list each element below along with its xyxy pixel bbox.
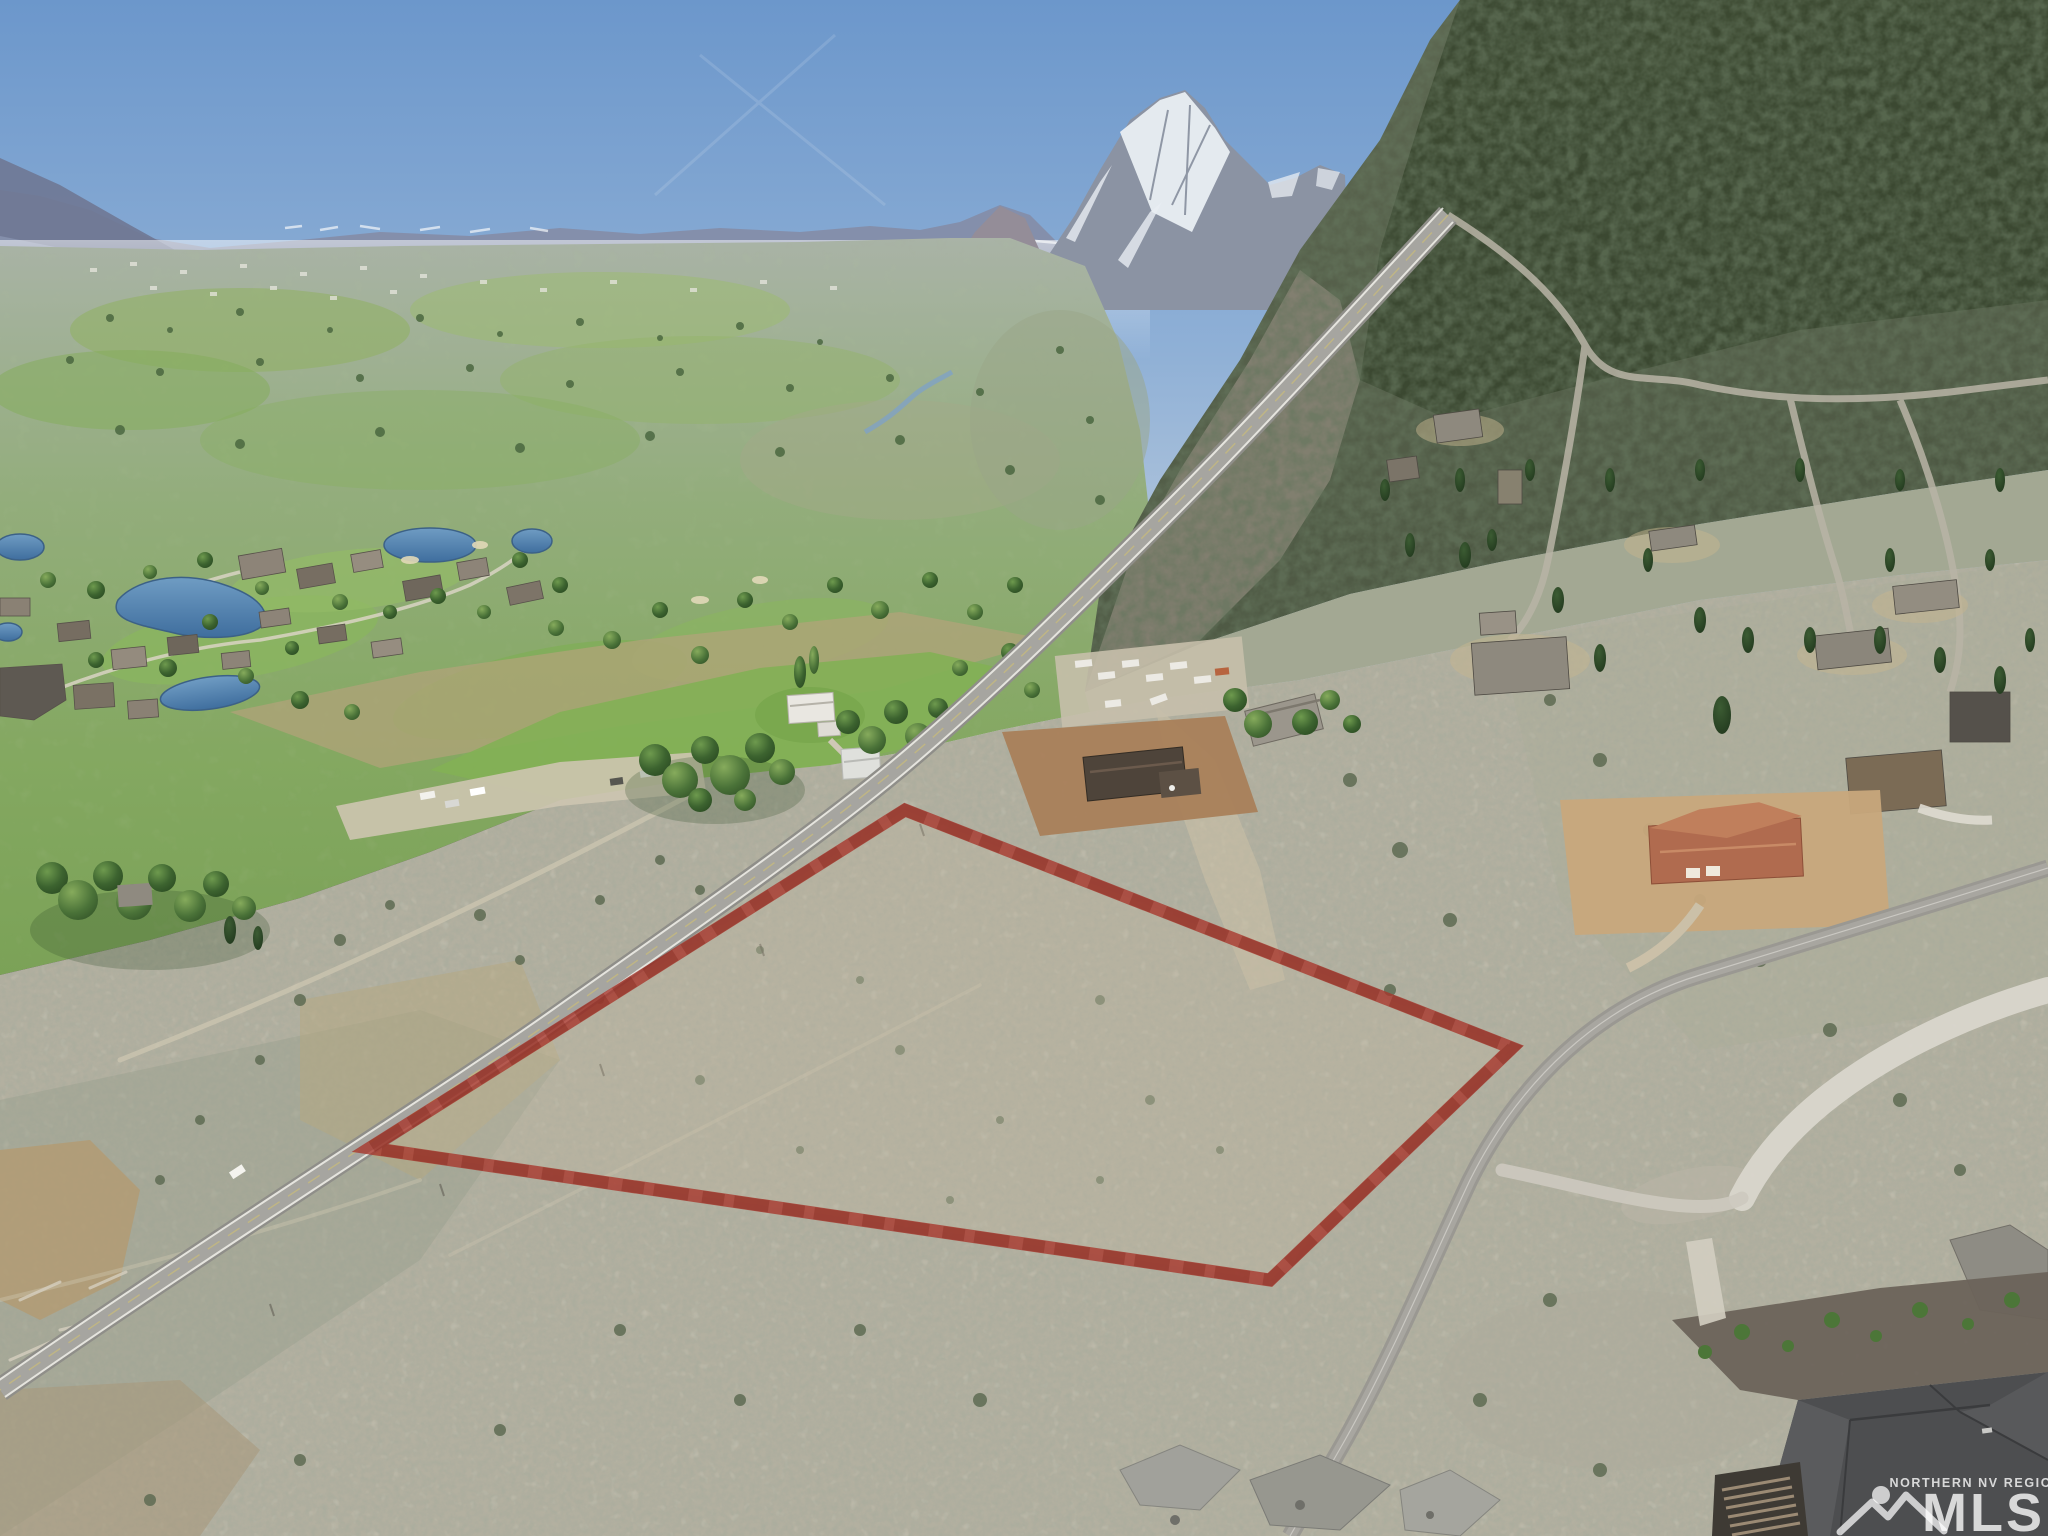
aerial-photo: NORTHERN NV REGIONAL MLS — [0, 0, 2048, 1536]
aerial-photo-canvas: NORTHERN NV REGIONAL MLS — [0, 0, 2048, 1536]
grain-dark — [0, 0, 2048, 1536]
